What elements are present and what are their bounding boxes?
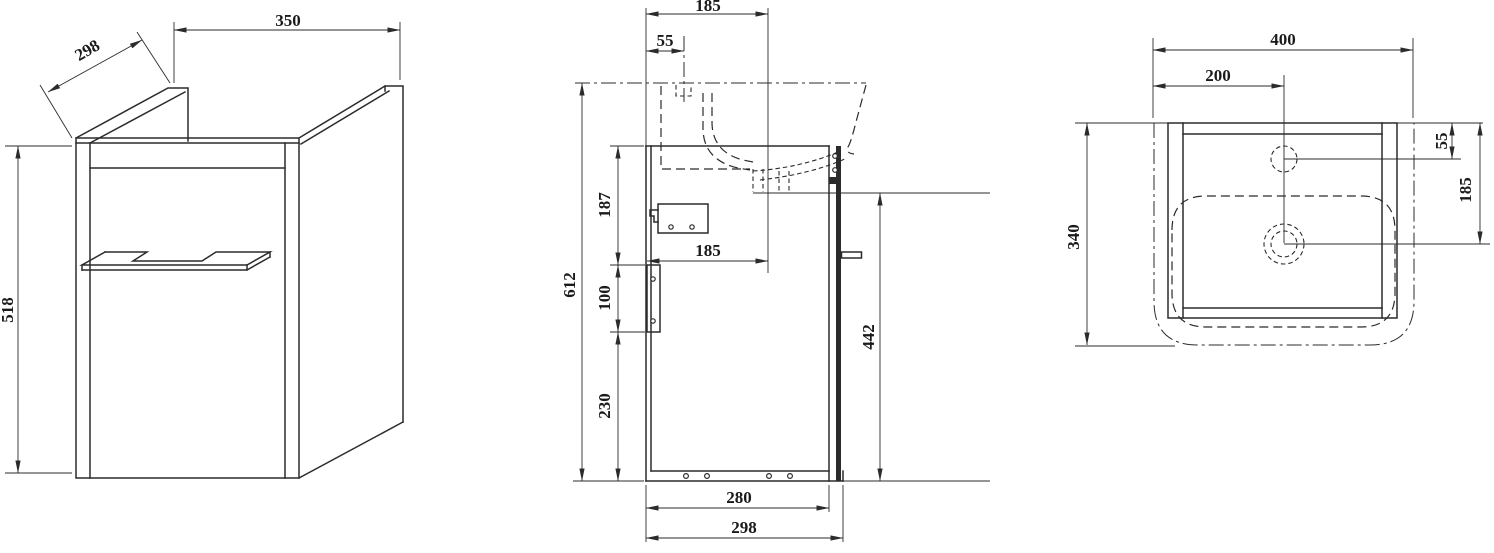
side-dimensions: 185 55 612 187 100 230 185 442 bbox=[560, 0, 990, 542]
plan-dimensions: 400 200 55 185 340 bbox=[1064, 30, 1480, 346]
side-view: 185 55 612 187 100 230 185 442 bbox=[560, 0, 990, 542]
hinge-hole bbox=[833, 168, 838, 173]
lower-mounting-rail bbox=[647, 265, 660, 332]
plan-basin-dashed bbox=[1154, 75, 1490, 345]
wall-mounting-bracket bbox=[650, 204, 708, 233]
cabinet-body-outline bbox=[76, 86, 403, 478]
hinge-plate-band bbox=[829, 177, 841, 184]
bottom-hole bbox=[788, 474, 793, 479]
isometric-view: 518 350 298 bbox=[0, 11, 403, 478]
dim-label-side-rail-section: 100 bbox=[595, 285, 614, 311]
dim-label-plan-center-offset: 200 bbox=[1205, 66, 1231, 85]
dim-label-side-drain-top: 185 bbox=[695, 0, 721, 15]
dim-label-plan-basin-width: 400 bbox=[1270, 30, 1296, 49]
dim-label-side-bottom-section: 230 bbox=[595, 393, 614, 419]
bottom-hole bbox=[705, 474, 710, 479]
dim-label-plan-faucet: 55 bbox=[1432, 133, 1451, 150]
dim-label-side-height: 612 bbox=[560, 272, 579, 298]
hinge-hole bbox=[833, 154, 838, 159]
dim-label-iso-depth: 298 bbox=[71, 36, 103, 65]
side-cabinet-outline bbox=[646, 146, 862, 481]
dim-label-side-inner-depth: 280 bbox=[726, 488, 752, 507]
bottom-hole bbox=[684, 474, 689, 479]
dim-label-side-top-section: 187 bbox=[595, 192, 614, 218]
door-tab bbox=[842, 252, 862, 258]
interior-shelf bbox=[82, 252, 270, 270]
technical-drawing-page: 518 350 298 bbox=[0, 0, 1494, 553]
dim-label-side-overall-depth: 298 bbox=[731, 518, 757, 537]
dim-label-iso-height: 518 bbox=[0, 297, 17, 323]
dim-label-iso-width: 350 bbox=[275, 11, 301, 30]
plan-cabinet-outline bbox=[1075, 123, 1483, 318]
basin-front-profile bbox=[847, 85, 866, 154]
iso-dimensions: 518 350 298 bbox=[0, 11, 400, 473]
bottom-hole bbox=[767, 474, 772, 479]
dim-label-side-drain-height: 442 bbox=[859, 324, 878, 350]
rail-hole bbox=[651, 319, 655, 323]
dim-label-plan-drain: 185 bbox=[1456, 177, 1475, 203]
bracket-hole bbox=[690, 225, 694, 229]
washbasin-profile-dashed bbox=[575, 36, 866, 193]
plan-view: 400 200 55 185 340 bbox=[1064, 30, 1490, 346]
dim-label-side-drain-mid: 185 bbox=[695, 241, 721, 260]
rail-hole bbox=[651, 277, 655, 281]
dim-label-side-faucet: 55 bbox=[657, 31, 674, 50]
bracket-hole bbox=[669, 225, 673, 229]
vanity-cabinet-drawing: 518 350 298 bbox=[0, 0, 1494, 553]
dim-label-plan-basin-depth: 340 bbox=[1064, 224, 1083, 250]
